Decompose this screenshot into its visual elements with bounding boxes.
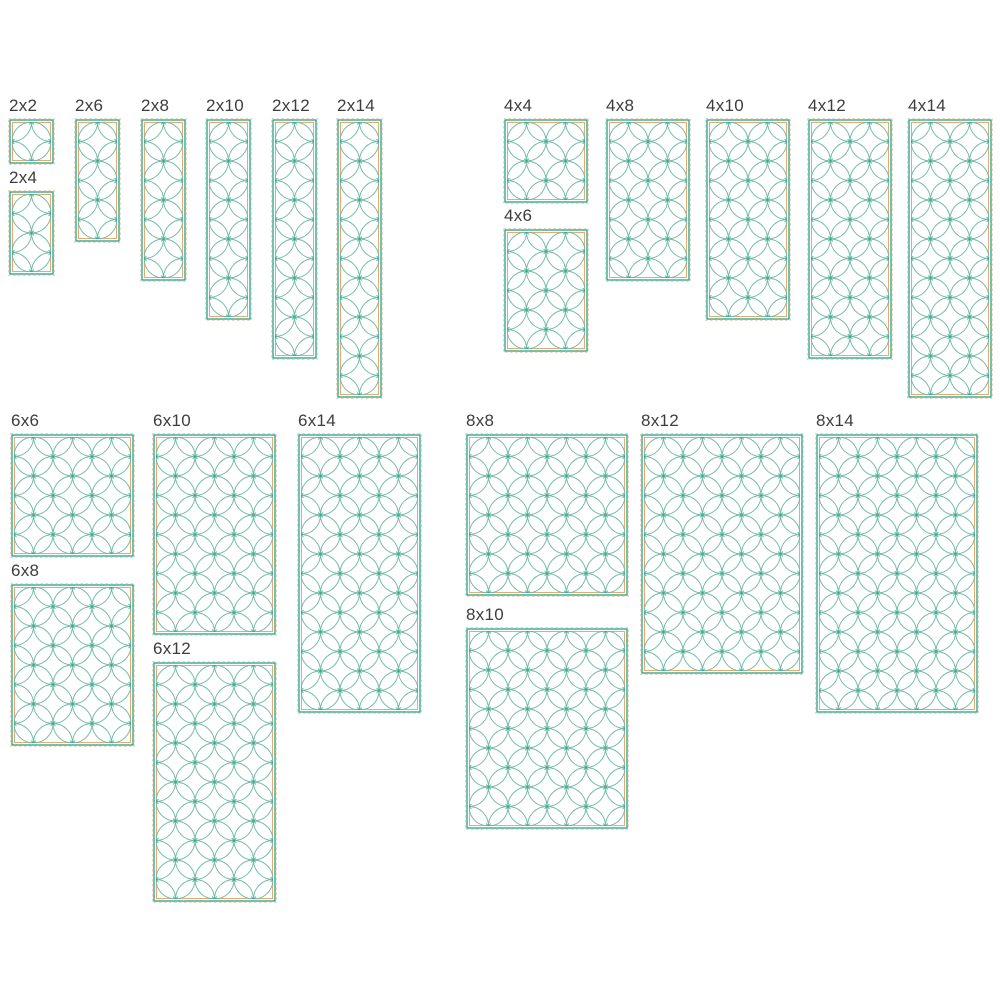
swatch-2x4[interactable]: 2x4 [8, 166, 55, 276]
swatch-2x12[interactable]: 2x12 [271, 94, 318, 360]
orange-peel-fill [709, 122, 787, 317]
pattern-preview [297, 433, 422, 714]
pattern-preview [152, 433, 277, 636]
pattern-preview [465, 433, 629, 597]
orange-peel-fill [275, 122, 314, 356]
pattern-preview [605, 118, 691, 282]
orange-peel-fill [340, 122, 379, 395]
orange-peel-fill [469, 437, 625, 593]
pattern-preview [10, 433, 135, 558]
pattern-preview [10, 583, 135, 747]
swatch-6x6[interactable]: 6x6 [10, 409, 135, 558]
swatch-2x2[interactable]: 2x2 [8, 94, 55, 165]
pattern-preview [336, 118, 383, 399]
swatch-size-label: 6x10 [152, 409, 277, 433]
pattern-preview [8, 118, 55, 165]
swatch-8x10[interactable]: 8x10 [465, 603, 629, 830]
swatch-8x12[interactable]: 8x12 [640, 409, 804, 675]
swatch-2x6[interactable]: 2x6 [74, 94, 121, 243]
swatch-size-label: 2x8 [140, 94, 187, 118]
swatch-6x12[interactable]: 6x12 [152, 637, 277, 903]
swatch-size-label: 2x6 [74, 94, 121, 118]
swatch-size-label: 2x10 [205, 94, 252, 118]
swatch-4x12[interactable]: 4x12 [807, 94, 893, 360]
swatch-size-label: 8x8 [465, 409, 629, 433]
orange-peel-fill [301, 437, 418, 710]
swatch-2x8[interactable]: 2x8 [140, 94, 187, 282]
swatch-size-label: 6x14 [297, 409, 422, 433]
swatch-size-label: 4x12 [807, 94, 893, 118]
pattern-preview [503, 228, 589, 353]
swatch-2x14[interactable]: 2x14 [336, 94, 383, 399]
orange-peel-fill [507, 122, 585, 200]
orange-peel-fill [819, 437, 975, 710]
pattern-preview [705, 118, 791, 321]
pattern-preview [74, 118, 121, 243]
swatch-size-label: 4x10 [705, 94, 791, 118]
pattern-preview [807, 118, 893, 360]
orange-peel-fill [507, 232, 585, 349]
swatch-size-label: 6x6 [10, 409, 135, 433]
swatch-4x10[interactable]: 4x10 [705, 94, 791, 321]
swatch-4x8[interactable]: 4x8 [605, 94, 691, 282]
swatch-4x14[interactable]: 4x14 [907, 94, 993, 399]
orange-peel-fill [12, 194, 51, 272]
swatch-4x6[interactable]: 4x6 [503, 204, 589, 353]
swatch-size-label: 4x6 [503, 204, 589, 228]
pattern-preview [140, 118, 187, 282]
swatch-2x10[interactable]: 2x10 [205, 94, 252, 321]
pattern-preview [465, 627, 629, 830]
orange-peel-fill [469, 631, 625, 826]
swatch-size-label: 2x12 [271, 94, 318, 118]
orange-peel-fill [209, 122, 248, 317]
swatch-size-label: 2x4 [8, 166, 55, 190]
orange-peel-fill [14, 587, 131, 743]
orange-peel-fill [156, 437, 273, 632]
swatch-4x4[interactable]: 4x4 [503, 94, 589, 204]
swatch-6x14[interactable]: 6x14 [297, 409, 422, 714]
orange-peel-fill [156, 665, 273, 899]
orange-peel-fill [609, 122, 687, 278]
pattern-preview [907, 118, 993, 399]
swatch-6x10[interactable]: 6x10 [152, 409, 277, 636]
swatch-8x14[interactable]: 8x14 [815, 409, 979, 714]
orange-peel-fill [12, 122, 51, 161]
swatch-size-label: 8x14 [815, 409, 979, 433]
pattern-preview [271, 118, 318, 360]
pattern-preview [152, 661, 277, 903]
swatch-size-label: 6x8 [10, 559, 135, 583]
pattern-preview [8, 190, 55, 276]
swatch-size-label: 6x12 [152, 637, 277, 661]
pattern-preview [815, 433, 979, 714]
swatch-size-label: 8x12 [640, 409, 804, 433]
swatch-size-label: 4x14 [907, 94, 993, 118]
pattern-preview [503, 118, 589, 204]
orange-peel-fill [644, 437, 800, 671]
pattern-size-chart: 2x22x42x62x82x102x122x144x44x64x84x104x1… [0, 0, 1000, 1000]
swatch-size-label: 4x8 [605, 94, 691, 118]
orange-peel-fill [911, 122, 989, 395]
swatch-size-label: 2x14 [336, 94, 383, 118]
orange-peel-fill [78, 122, 117, 239]
swatch-size-label: 8x10 [465, 603, 629, 627]
orange-peel-fill [14, 437, 131, 554]
swatch-size-label: 2x2 [8, 94, 55, 118]
swatch-6x8[interactable]: 6x8 [10, 559, 135, 747]
pattern-preview [205, 118, 252, 321]
swatch-8x8[interactable]: 8x8 [465, 409, 629, 597]
swatch-size-label: 4x4 [503, 94, 589, 118]
pattern-preview [640, 433, 804, 675]
orange-peel-fill [811, 122, 889, 356]
orange-peel-fill [144, 122, 183, 278]
